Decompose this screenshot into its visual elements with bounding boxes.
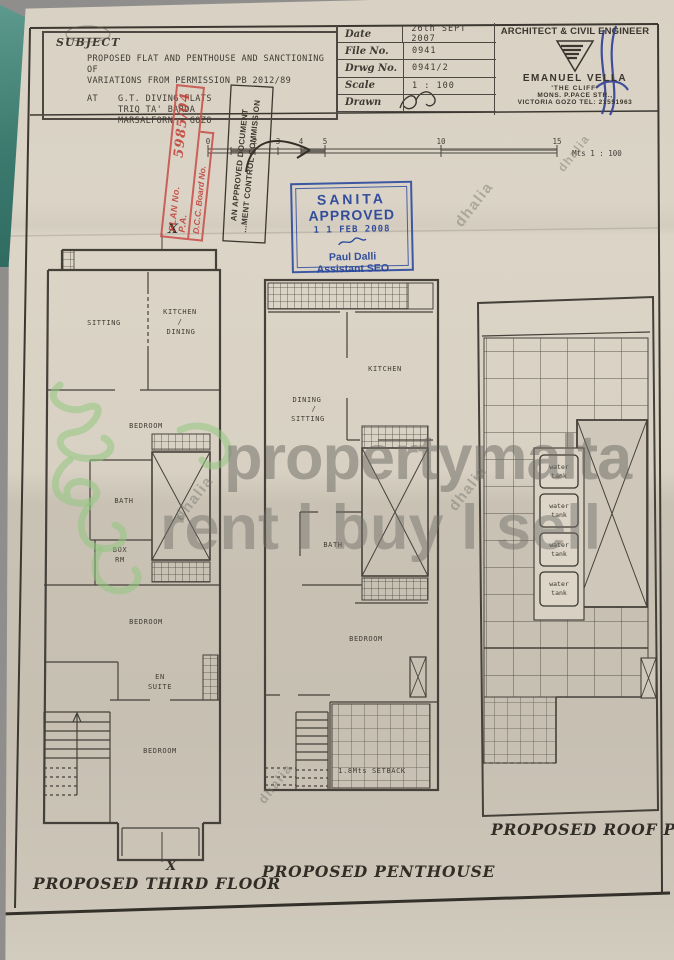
sanita-date: 1 1 FEB 2008 xyxy=(293,224,411,236)
title-block: Date 26th SEPT 2007 File No. 0941 Drwg N… xyxy=(336,26,496,115)
subject-line: VARIATIONS FROM PERMISSION PB 2012/89 xyxy=(87,76,336,87)
field-label: Drawn xyxy=(338,95,404,111)
plan-no-value: 5985/04 xyxy=(172,91,194,158)
room-label-kitchen: KITCHEN xyxy=(163,308,197,316)
roof-plan-title: PROPOSED ROOF PLAN xyxy=(491,820,674,839)
field-label: Scale xyxy=(338,78,404,94)
sanita-officer-role: Assistant SEO xyxy=(294,262,412,276)
scale-tick: 10 xyxy=(436,137,446,146)
title-block-row: Drawn xyxy=(338,95,496,112)
room-label-suite: SUITE xyxy=(148,683,172,691)
signature-scribble-icon xyxy=(335,236,369,249)
field-label: Date xyxy=(338,26,403,42)
field-value: 0941 xyxy=(404,46,436,56)
penthouse-title: PROPOSED PENTHOUSE xyxy=(262,862,495,881)
room-label-bath: BATH xyxy=(114,497,133,505)
title-block-row: Drwg No. 0941/2 xyxy=(338,60,496,77)
plan-no-label: PLAN No. P.A. xyxy=(167,165,194,233)
water-tank-label: tank xyxy=(551,589,567,597)
scale-bar: 0 2 3 4 5 10 15 Mts 1 : 100 xyxy=(206,137,623,158)
architect-address: 'THE CLIFF' xyxy=(495,85,655,92)
title-block-row: Scale 1 : 100 xyxy=(338,78,496,95)
field-label: File No. xyxy=(338,43,404,59)
water-tank: water tank xyxy=(540,572,578,606)
water-tank-label: water xyxy=(549,580,569,588)
room-label-bedroom: BEDROOM xyxy=(143,747,177,755)
section-marker-bottom: X xyxy=(165,859,177,874)
architect-block: ARCHITECT & CIVIL ENGINEER EMANUEL VELLA… xyxy=(494,23,655,115)
watermark-rent-buy-sell: rent l buy l sell xyxy=(160,492,601,564)
field-label: Drwg No. xyxy=(338,60,404,76)
room-label-bedroom: BEDROOM xyxy=(129,618,163,626)
architect-heading: ARCHITECT & CIVIL ENGINEER xyxy=(495,26,655,37)
scale-tick: 15 xyxy=(552,137,561,146)
architect-logo-icon xyxy=(495,39,655,73)
room-label-kitchen: KITCHEN xyxy=(368,365,402,373)
title-block-row: Date 26th SEPT 2007 xyxy=(338,26,496,43)
field-value: 1 : 100 xyxy=(404,81,455,91)
field-value: 0941/2 xyxy=(404,63,449,73)
room-label-bedroom: BEDROOM xyxy=(129,422,163,430)
scale-tick: 5 xyxy=(323,137,328,146)
room-label-rm: RM xyxy=(115,556,125,564)
room-label-dining: DINING xyxy=(293,396,322,404)
architect-address: MONS. P.PACE STR., xyxy=(495,92,655,99)
sanita-approved-stamp: SANITA APPROVED 1 1 FEB 2008 Paul Dalli … xyxy=(290,181,414,274)
room-label-sitting: SITTING xyxy=(87,319,121,327)
room-label-slash: / xyxy=(178,318,183,326)
room-label-slash: / xyxy=(312,405,317,413)
room-label-en: EN xyxy=(155,673,165,681)
watermark-propertymalta: propertymalta xyxy=(224,422,631,494)
architect-address: VICTORIA GOZO TEL: 21551963 xyxy=(495,99,655,106)
room-label-bedroom: BEDROOM xyxy=(349,635,383,643)
sanita-line: APPROVED xyxy=(293,206,411,224)
subject-line: PROPOSED FLAT AND PENTHOUSE AND SANCTION… xyxy=(87,54,336,76)
third-floor-title: PROPOSED THIRD FLOOR xyxy=(33,874,281,893)
architect-name: EMANUEL VELLA xyxy=(495,73,655,84)
photo-of-architectural-plan: 0 2 3 4 5 10 15 Mts 1 : 100 xyxy=(0,0,674,960)
subject-at-label: AT xyxy=(87,94,98,127)
title-block-row: File No. 0941 xyxy=(338,43,496,60)
room-label-dining: DINING xyxy=(167,328,196,336)
setback-label: 1.8Mts SETBACK xyxy=(338,767,406,775)
subject-heading: SUBJECT xyxy=(56,36,336,49)
field-value: 26th SEPT 2007 xyxy=(403,24,496,44)
paper-sheet: 0 2 3 4 5 10 15 Mts 1 : 100 xyxy=(0,0,674,960)
